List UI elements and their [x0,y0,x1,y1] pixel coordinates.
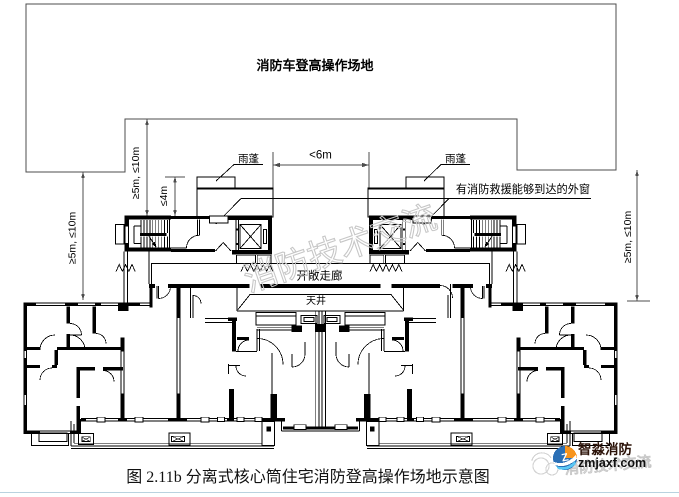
svg-text:图 2.11b 分离式核心筒住宅消防登高操作场地示意图: 图 2.11b 分离式核心筒住宅消防登高操作场地示意图 [126,467,489,486]
svg-text:≥5m, ≤10m: ≥5m, ≤10m [622,211,634,264]
svg-text:<6m: <6m [309,150,332,162]
svg-text:智淼消防: 智淼消防 [578,441,632,457]
svg-text:≤4m: ≤4m [158,186,170,207]
svg-text:天井: 天井 [306,294,326,307]
svg-text:有消防救援能够到达的外窗: 有消防救援能够到达的外窗 [456,182,590,196]
svg-text:≥5m, ≤10m: ≥5m, ≤10m [130,147,142,200]
svg-text:≥5m, ≤10m: ≥5m, ≤10m [67,212,79,265]
svg-text:zmjaxf.com: zmjaxf.com [578,456,646,470]
svg-text:雨蓬: 雨蓬 [238,153,259,165]
svg-text:雨蓬: 雨蓬 [445,153,466,165]
svg-text:消防车登高操作场地: 消防车登高操作场地 [256,58,373,73]
